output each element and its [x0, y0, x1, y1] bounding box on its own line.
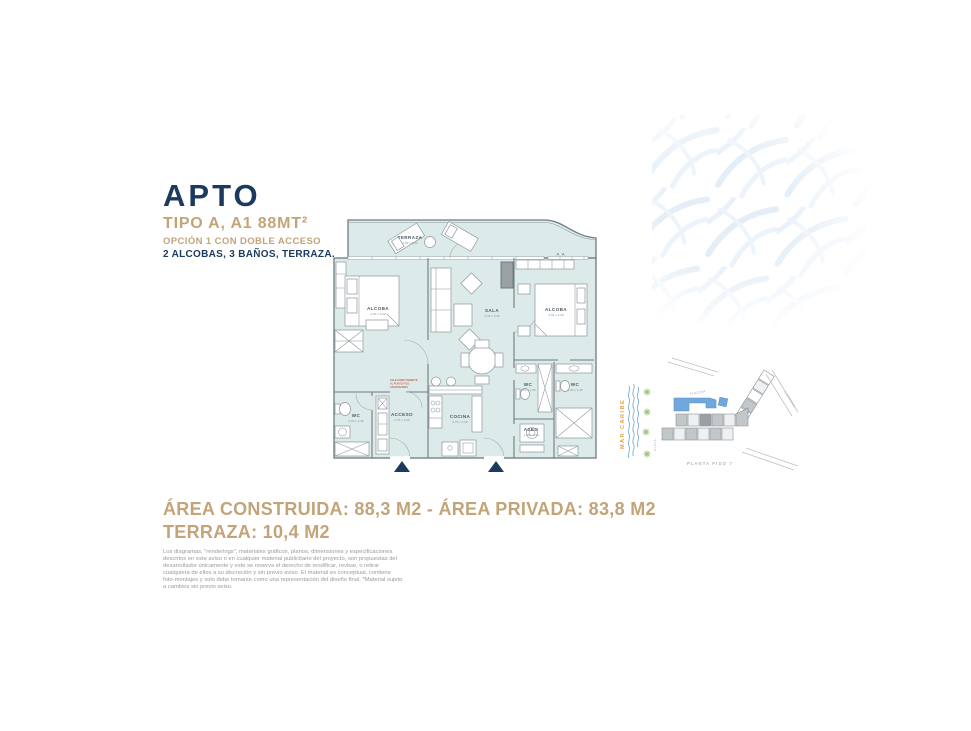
- pool-small: [718, 397, 727, 406]
- terrace-side-table: [425, 237, 436, 248]
- access-note-line-2: AL PUNTO FIJO: [390, 382, 409, 386]
- disclaimer-text: Los diagramas, "renderings", materiales …: [163, 549, 403, 591]
- site-plan-floor-label: PLANTA PISO 7: [687, 461, 733, 466]
- entrance-arrow-2: [488, 461, 504, 472]
- area-line-2: TERRAZA: 10,4 M2: [163, 521, 683, 544]
- area-line-1: ÁREA CONSTRUIDA: 88,3 M2 - ÁREA PRIVADA:…: [163, 498, 683, 521]
- room-dims-terraza: 1,90 x 6,90: [402, 241, 418, 245]
- room-dims-sala: 4,45 x 3,40: [484, 314, 500, 318]
- access-note-line-3: ASCENSORES: [390, 385, 408, 389]
- acceso-cabinet: [376, 396, 389, 454]
- room-label-wc-3: WC: [571, 382, 580, 387]
- door-opening: [484, 456, 504, 460]
- palm-trees: [643, 389, 651, 458]
- room-dims-wc-1: 2,92 x 1,30: [348, 419, 364, 423]
- sea-label: MAR CARIBE: [620, 399, 626, 449]
- highlighted-unit: [700, 414, 711, 426]
- room-dims-wc-3: 3,40 x 1,35: [567, 388, 583, 392]
- room-label-wc-1: WC: [352, 413, 361, 418]
- entrance-arrow-1: [394, 461, 410, 472]
- dining-table: [468, 346, 496, 374]
- sea-waves: [628, 384, 638, 458]
- pool-label: PISCINA: [689, 389, 706, 396]
- room-dims-wc-2: 1,83 x 1,50: [520, 388, 536, 392]
- site-plan: MAR CARIBE PLAYA PISCINA: [614, 356, 806, 478]
- coffee-table: [454, 304, 472, 326]
- section-marker: A A: [556, 252, 565, 257]
- room-label-wc-2: WC: [524, 382, 533, 387]
- leaf-pattern-decoration: [652, 115, 867, 325]
- window-band: [348, 257, 588, 260]
- room-label-acceso: ACCESO: [391, 412, 413, 417]
- page-title: APTO: [163, 180, 423, 211]
- road-label: CARRERA: [783, 390, 796, 408]
- room-dims-aseo: 1,50 x 1,38: [523, 433, 539, 437]
- plant: [447, 377, 456, 386]
- room-label-terraza: TERRAZA: [398, 235, 423, 240]
- area-summary: ÁREA CONSTRUIDA: 88,3 M2 - ÁREA PRIVADA:…: [163, 498, 683, 543]
- room-dims-cocina: 2,75 x 3,40: [452, 420, 468, 424]
- room-label-cocina: COCINA: [450, 414, 471, 419]
- sofa: [431, 268, 451, 332]
- room-label-aseo: ASEO: [524, 427, 539, 432]
- room-label-sala: SALA: [485, 308, 499, 313]
- beach-label: PLAYA: [653, 439, 657, 451]
- room-label-alcoba-2: ALCOBA: [545, 307, 567, 312]
- room-dims-acceso: 2,75 x 1,59: [394, 418, 410, 422]
- room-label-alcoba-1: ALCOBA: [367, 306, 389, 311]
- shaft: [501, 262, 513, 288]
- brochure-page: APTO TIPO A, A1 88MT² OPCIÓN 1 CON DOBLE…: [0, 0, 971, 731]
- floor-plan: TERRAZA 1,90 x 6,90 ALCOBA 4,45 x 3,00 S…: [332, 212, 600, 474]
- room-dims-alcoba-2: 3,04 x 3,00: [548, 313, 564, 317]
- room-dims-alcoba-1: 4,45 x 3,00: [370, 312, 386, 316]
- pool: [674, 398, 716, 411]
- toilet: [340, 403, 351, 416]
- door-opening: [390, 456, 410, 460]
- plant: [432, 377, 441, 386]
- kitchen-sink: [442, 442, 458, 456]
- access-note-line-1: SALE DIRECTAMENTE: [390, 378, 418, 382]
- stove: [429, 396, 442, 428]
